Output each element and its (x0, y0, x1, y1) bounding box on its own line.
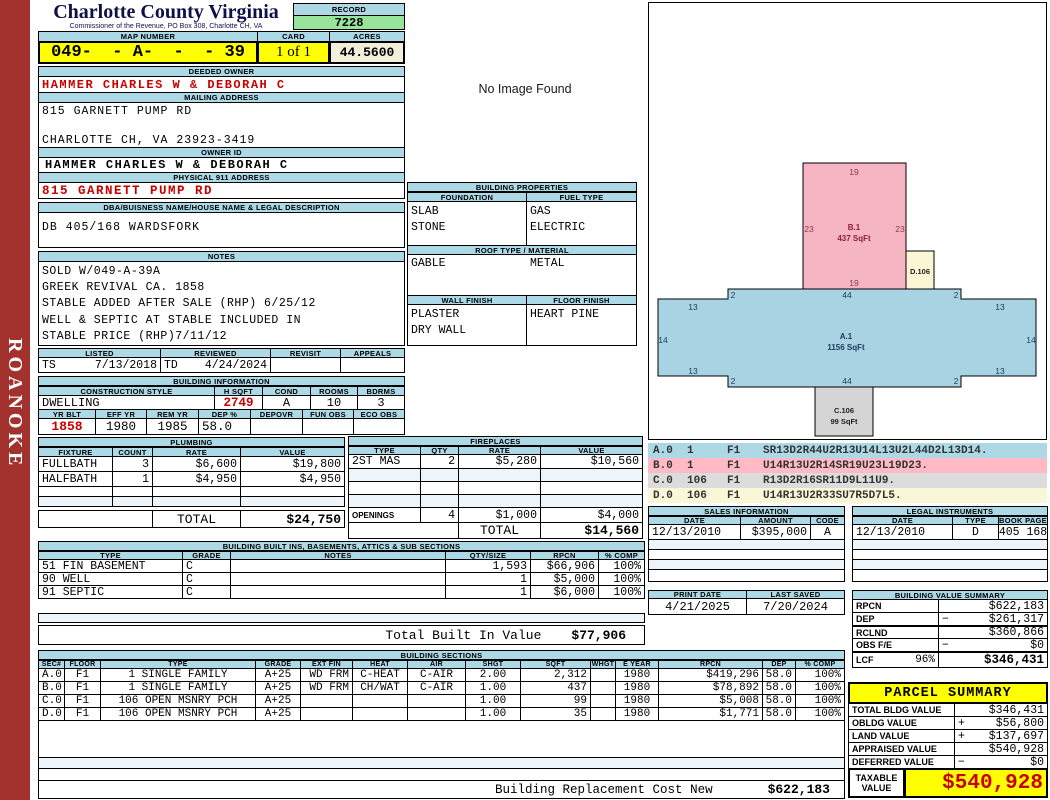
ps-value-row: $540,928 (954, 742, 1048, 756)
ps-value: $0 (1030, 756, 1044, 769)
sec-extfin: WD FRM (300, 668, 353, 682)
deeded-owner-value: HAMMER CHARLES W & DEBORAH C (38, 76, 405, 93)
rooms-value: 10 (310, 395, 358, 410)
sec-rpcn: $78,892 (658, 681, 763, 695)
vector-sec: B.0 (648, 460, 687, 472)
vector-floor: F1 (727, 445, 763, 457)
sketch-dim: 44 (842, 290, 852, 300)
effyr-value: 1980 (95, 418, 147, 435)
fp-empty (540, 481, 643, 495)
sale-date: 12/13/2010 (648, 524, 741, 540)
fp-openings-rate: $1,000 (458, 507, 541, 523)
sale-amount: $395,000 (740, 524, 811, 540)
sketch-dim: 2 (731, 376, 736, 386)
sec-id: D.0 (38, 707, 65, 721)
property-record-card: ROANOKE Charlotte County Virginia Commis… (0, 0, 1050, 800)
ps-label: OBLDG VALUE (848, 716, 955, 730)
fp-empty (348, 468, 421, 482)
sketch-drawing: 19 23 23 19 B.1 437 SqFt D.106 2 44 2 13… (649, 3, 1046, 439)
last-saved-value: 7/20/2024 (746, 598, 845, 615)
sec-comp: 100% (795, 681, 845, 695)
sec-whgt (590, 681, 616, 695)
plumbing-title: PLUMBING (38, 437, 345, 447)
fp-total-spacer (348, 522, 459, 539)
sec-comp: 100% (795, 694, 845, 708)
sections-empty-area (38, 720, 845, 758)
fuel-values: GAS ELECTRIC (526, 201, 637, 246)
sketch-area-c106: 99 SqFt (830, 417, 858, 426)
remyr-value: 1985 (146, 418, 199, 435)
fp-type: 2ST MAS (348, 454, 421, 469)
sec-rpcn: $5,008 (658, 694, 763, 708)
ps-value: $137,697 (989, 730, 1044, 743)
replacement-cost-value: $622,183 (768, 782, 830, 797)
floor-finish-values: HEART PINE (526, 304, 637, 346)
vs-value-row: $360,866 (938, 625, 1048, 639)
record-value: 7228 (293, 15, 405, 30)
mailing-line1: 815 GARNETT PUMP RD (39, 103, 404, 118)
fuel-line: ELECTRIC (530, 220, 636, 236)
sec-shgt: 1.00 (465, 681, 521, 695)
vector-row-d: D.0 106 F1 U14R13U2R33SU7R5D7L5. (648, 488, 1047, 503)
ps-value: $56,800 (996, 717, 1044, 730)
bi-comp: 100% (598, 585, 645, 599)
wall-finish-values: PLASTER DRY WALL (407, 304, 527, 346)
sec-extfin (300, 694, 353, 708)
vs-lcf-pct: 96% (915, 654, 935, 666)
bi-comp: 100% (598, 559, 645, 573)
plumbing-empty (38, 496, 113, 507)
fireplaces-title: FIREPLACES (348, 436, 643, 446)
sketch-canvas: 19 23 23 19 B.1 437 SqFt D.106 2 44 2 13… (648, 2, 1047, 440)
ps-sign: − (958, 756, 965, 769)
depovr-value (250, 418, 303, 435)
legal-book: 405 168 (998, 524, 1048, 540)
ps-label: TOTAL BLDG VALUE (848, 703, 955, 717)
wall-line: DRY WALL (411, 323, 526, 339)
county-title: Charlotte County Virginia (40, 2, 292, 23)
owner-id-value: HAMMER CHARLES W & DEBORAH C (38, 157, 405, 173)
no-image-placeholder: No Image Found (445, 82, 605, 96)
plumbing-count: 3 (112, 456, 153, 472)
fp-empty (458, 468, 541, 482)
bi-grade: C (182, 585, 231, 599)
wall-line: PLASTER (411, 307, 526, 323)
vs-label: DEP (852, 612, 939, 626)
fp-total-value: $14,560 (540, 522, 643, 539)
sale-code: A (810, 524, 845, 540)
vector-path: U14R13U2R33SU7R5D7L5. (763, 490, 902, 502)
sec-eyear: 1980 (615, 694, 659, 708)
vs-value: $622,183 (989, 600, 1044, 613)
fp-empty (348, 481, 421, 495)
fuel-line: GAS (530, 204, 636, 220)
plumbing-total-label: TOTAL (152, 510, 241, 528)
sec-type: 1 SINGLE FAMILY (100, 668, 256, 682)
plumbing-total-spacer (38, 510, 153, 528)
sec-air: C-AIR (407, 668, 466, 682)
vector-sec: A.0 (648, 445, 687, 457)
bi-type: 91 SEPTIC (38, 585, 183, 599)
sec-extfin (300, 707, 353, 721)
ps-label: APPRAISED VALUE (848, 742, 955, 756)
sec-whgt (590, 694, 616, 708)
sec-grade: A+25 (255, 707, 301, 721)
legal-description-box: DB 405/168 WARDSFORK (38, 212, 405, 248)
vs-lcf-label-row: LCF 96% (852, 651, 939, 668)
ps-label: DEFERRED VALUE (848, 755, 955, 769)
reviewed-by: TD (164, 359, 178, 372)
bi-grade: C (182, 559, 231, 573)
taxable-label-line: VALUE (862, 783, 892, 793)
reviewed-value: TD4/24/2024 (160, 357, 271, 373)
plumbing-rate: $6,600 (152, 456, 241, 472)
map-number-value: 049- - A- - - 39 (38, 41, 258, 64)
sketch-dim: 44 (842, 376, 852, 386)
vector-code: 1 (687, 445, 727, 457)
bi-empty-row (38, 613, 645, 623)
sec-type: 106 OPEN MSNRY PCH (100, 694, 256, 708)
plumbing-count: 1 (112, 471, 153, 487)
bi-notes (230, 572, 446, 586)
vs-lcf-value: $346,431 (938, 651, 1048, 668)
sketch-dim: 23 (895, 224, 905, 234)
vector-code: 106 (687, 490, 727, 502)
vector-code: 1 (687, 460, 727, 472)
vs-label: LCF (856, 655, 874, 665)
building-info-title: BUILDING INFORMATION (38, 376, 405, 386)
sec-floor: F1 (64, 668, 101, 682)
floor-line: HEART PINE (530, 307, 636, 323)
sec-heat: CH/WAT (352, 681, 408, 695)
vector-row-a: A.0 1 F1 SR13D2R44U2R13U14L13U2L44D2L13D… (648, 443, 1047, 458)
sec-floor: F1 (64, 681, 101, 695)
sec-type: 1 SINGLE FAMILY (100, 681, 256, 695)
sec-grade: A+25 (255, 694, 301, 708)
sidebar-banner: ROANOKE (0, 0, 30, 800)
note-line: SOLD W/049-A-39A (42, 264, 404, 280)
vector-floor: F1 (727, 475, 763, 487)
sec-id: C.0 (38, 694, 65, 708)
properties-title: BUILDING PROPERTIES (407, 182, 637, 192)
fp-total-label: TOTAL (458, 522, 541, 539)
vector-row-b: B.0 1 F1 U14R13U2R14SR19U23L19D23. (648, 458, 1047, 473)
plumbing-empty (112, 496, 153, 507)
card-value: 1 of 1 (257, 41, 330, 64)
ps-value-row: +$137,697 (954, 729, 1048, 743)
vs-sign: − (942, 639, 949, 652)
replacement-cost-label: Building Replacement Cost New (495, 783, 713, 797)
fp-empty (420, 481, 459, 495)
sec-rpcn: $1,771 (658, 707, 763, 721)
bi-notes (230, 585, 446, 599)
sec-dep: 58.0 (762, 694, 796, 708)
plumbing-empty (240, 496, 345, 507)
sec-sqft: 437 (520, 681, 591, 695)
legal-description: DB 405/168 WARDSFORK (39, 213, 404, 234)
vector-sec: C.0 (648, 475, 687, 487)
sec-grade: A+25 (255, 681, 301, 695)
cond-value: A (262, 395, 311, 410)
replacement-cost-row: Building Replacement Cost New $622,183 (38, 780, 845, 799)
plumbing-fixture: FULLBATH (38, 456, 113, 472)
fp-empty (540, 468, 643, 482)
fp-empty (540, 494, 643, 508)
sec-dep: 58.0 (762, 707, 796, 721)
funobs-value (302, 418, 354, 435)
notes-box: SOLD W/049-A-39A GREEK REVIVAL CA. 1858 … (38, 261, 405, 346)
bi-total-row: Total Built In Value $77,906 (38, 625, 645, 645)
bi-total-label: Total Built In Value (385, 628, 541, 643)
sketch-dim: 19 (849, 167, 859, 177)
banner-text: ROANOKE (3, 338, 26, 469)
plumbing-value: $4,950 (240, 471, 345, 487)
sec-type: 106 OPEN MSNRY PCH (100, 707, 256, 721)
sketch-area-b1: 437 SqFt (837, 234, 871, 243)
mailing-address-box: 815 GARNETT PUMP RD CHARLOTTE CH, VA 239… (38, 102, 405, 148)
yrblt-value: 1858 (38, 418, 96, 435)
sec-eyear: 1980 (615, 681, 659, 695)
vs-value-row: −$0 (938, 638, 1048, 652)
print-date-value: 4/21/2025 (648, 598, 747, 615)
legal-type: D (952, 524, 999, 540)
sec-extfin: WD FRM (300, 681, 353, 695)
sec-eyear: 1980 (615, 668, 659, 682)
vector-row-c: C.0 106 F1 R13D2R16SR11D9L11U9. (648, 473, 1047, 488)
sec-id: B.0 (38, 681, 65, 695)
bi-notes (230, 559, 446, 573)
fp-rate: $5,280 (458, 454, 541, 469)
plumbing-empty (152, 496, 241, 507)
county-header: Charlotte County Virginia Commissioner o… (40, 2, 292, 30)
revisit-value (270, 357, 341, 373)
vector-path: R13D2R16SR11D9L11U9. (763, 475, 895, 487)
listed-by: TS (42, 359, 56, 372)
sec-dep: 58.0 (762, 681, 796, 695)
ps-value: $346,431 (989, 704, 1044, 717)
sec-eyear: 1980 (615, 707, 659, 721)
ps-sign: + (958, 730, 965, 743)
vs-value: $0 (1030, 639, 1044, 652)
vector-code: 106 (687, 475, 727, 487)
vector-path: U14R13U2R14SR19U23L19D23. (763, 460, 928, 472)
sec-heat (352, 694, 408, 708)
reviewed-date: 4/24/2024 (205, 359, 267, 372)
fp-openings-qty: 4 (420, 507, 459, 523)
bi-qty: 1 (445, 572, 531, 586)
vs-value: $261,317 (989, 613, 1044, 626)
bi-qty: 1,593 (445, 559, 531, 573)
sketch-label-b1: B.1 (848, 223, 861, 232)
ps-value-row: $346,431 (954, 703, 1048, 717)
sec-heat (352, 707, 408, 721)
sec-shgt: 1.00 (465, 694, 521, 708)
vs-value-row: $622,183 (938, 599, 1048, 613)
ps-label: LAND VALUE (848, 729, 955, 743)
sec-sqft: 35 (520, 707, 591, 721)
legal-date: 12/13/2010 (852, 524, 953, 540)
sec-floor: F1 (64, 694, 101, 708)
roof-values: GABLE METAL (407, 254, 637, 296)
taxable-label-line: TAXABLE (856, 773, 898, 783)
plumbing-fixture: HALFBATH (38, 471, 113, 487)
sec-whgt (590, 668, 616, 682)
built-ins-title: BUILDING BUILT INS, BASEMENTS, ATTICS & … (38, 541, 645, 551)
sec-floor: F1 (64, 707, 101, 721)
vs-value-row: −$261,317 (938, 612, 1048, 626)
sec-comp: 100% (795, 707, 845, 721)
taxable-value: $540,928 (904, 768, 1048, 798)
sec-rpcn: $419,296 (658, 668, 763, 682)
plumbing-value: $19,800 (240, 456, 345, 472)
ps-value-row: −$0 (954, 755, 1048, 769)
sketch-label-d106: D.106 (910, 267, 930, 276)
acres-value: 44.5600 (329, 41, 405, 64)
county-subtitle: Commissioner of the Revenue, PO Box 308,… (40, 23, 292, 30)
fp-openings-value: $4,000 (540, 507, 643, 523)
fp-value: $10,560 (540, 454, 643, 469)
sec-heat: C-HEAT (352, 668, 408, 682)
sketch-dim: 13 (995, 366, 1005, 376)
fp-empty (420, 468, 459, 482)
roof-type-value: GABLE (411, 257, 446, 270)
plumbing-rate: $4,950 (152, 471, 241, 487)
sec-whgt (590, 707, 616, 721)
sketch-label-c106: C.106 (834, 406, 854, 415)
ps-sign: + (958, 717, 965, 730)
vs-sign: − (942, 613, 949, 626)
sketch-dim: 23 (804, 224, 814, 234)
sales-empty-row (648, 569, 845, 582)
bdrms-value: 3 (357, 395, 405, 410)
sketch-area-a1: 1156 SqFt (827, 343, 865, 352)
mailing-line2: CHARLOTTE CH, VA 23923-3419 (39, 118, 404, 147)
note-line: WELL & SEPTIC AT STABLE INCLUDED IN (42, 313, 404, 329)
listed-date: 7/13/2018 (95, 359, 157, 372)
foundation-values: SLAB STONE (407, 201, 527, 246)
sketch-dim: 2 (954, 376, 959, 386)
sketch-dim: 13 (688, 366, 698, 376)
vector-floor: F1 (727, 490, 763, 502)
appeals-value (340, 357, 405, 373)
sec-sqft: 99 (520, 694, 591, 708)
legal-empty-row (852, 569, 1048, 582)
sec-sqft: 2,312 (520, 668, 591, 682)
fp-empty (420, 494, 459, 508)
ecoobs-value (353, 418, 405, 435)
vs-label: RPCN (852, 599, 939, 613)
sec-shgt: 2.00 (465, 668, 521, 682)
sec-air (407, 694, 466, 708)
bi-rpcn: $5,000 (530, 572, 599, 586)
legal-title: LEGAL INSTRUMENTS (852, 506, 1048, 516)
construction-style-value: DWELLING (38, 395, 215, 410)
fp-openings-label: OPENINGS (348, 507, 421, 523)
vector-floor: F1 (727, 460, 763, 472)
dep-pct-value: 58.0 (198, 418, 251, 435)
sec-shgt: 1.00 (465, 707, 521, 721)
bi-type: 90 WELL (38, 572, 183, 586)
sec-dep: 58.0 (762, 668, 796, 682)
foundation-line: STONE (411, 220, 526, 236)
roof-material-value: METAL (530, 257, 565, 270)
fp-empty (458, 494, 541, 508)
fp-empty (458, 481, 541, 495)
ps-value: $540,928 (989, 743, 1044, 756)
note-line: STABLE PRICE (RHP)7/11/12 (42, 329, 404, 345)
plumbing-total-value: $24,750 (240, 510, 345, 528)
sec-air (407, 707, 466, 721)
parcel-summary-title: PARCEL SUMMARY (848, 682, 1048, 704)
hsqft-value: 2749 (214, 395, 263, 410)
vector-path: SR13D2R44U2R13U14L13U2L44D2L13D14. (763, 445, 987, 457)
sec-comp: 100% (795, 668, 845, 682)
fp-empty (348, 494, 421, 508)
foundation-line: SLAB (411, 204, 526, 220)
sketch-dim: 14 (1026, 335, 1036, 345)
sketch-dim: 2 (731, 290, 736, 300)
taxable-value-label: TAXABLE VALUE (848, 768, 905, 798)
sec-grade: A+25 (255, 668, 301, 682)
vector-sec: D.0 (648, 490, 687, 502)
bi-total-value: $77,906 (571, 628, 626, 643)
note-line: GREEK REVIVAL CA. 1858 (42, 280, 404, 296)
sales-title: SALES INFORMATION (648, 506, 845, 516)
sketch-dim: 13 (688, 302, 698, 312)
sketch-dim: 2 (954, 290, 959, 300)
bi-rpcn: $6,000 (530, 585, 599, 599)
sketch-dim: 19 (849, 278, 859, 288)
sec-air: C-AIR (407, 681, 466, 695)
bi-type: 51 FIN BASEMENT (38, 559, 183, 573)
fp-qty: 2 (420, 454, 459, 469)
vs-label: RCLND (852, 625, 939, 639)
bi-qty: 1 (445, 585, 531, 599)
vs-label: OBS F/E (852, 638, 939, 652)
physical-address-value: 815 GARNETT PUMP RD (38, 182, 405, 199)
bi-rpcn: $66,906 (530, 559, 599, 573)
sketch-label-a1: A.1 (840, 332, 853, 341)
bi-grade: C (182, 572, 231, 586)
note-line: STABLE ADDED AFTER SALE (RHP) 6/25/12 (42, 296, 404, 312)
sketch-dim: 13 (995, 302, 1005, 312)
sections-title: BUILDING SECTIONS (38, 650, 845, 660)
sec-id: A.0 (38, 668, 65, 682)
listed-value: TS7/13/2018 (38, 357, 161, 373)
sketch-dim: 14 (658, 335, 668, 345)
bi-comp: 100% (598, 572, 645, 586)
ps-value-row: +$56,800 (954, 716, 1048, 730)
